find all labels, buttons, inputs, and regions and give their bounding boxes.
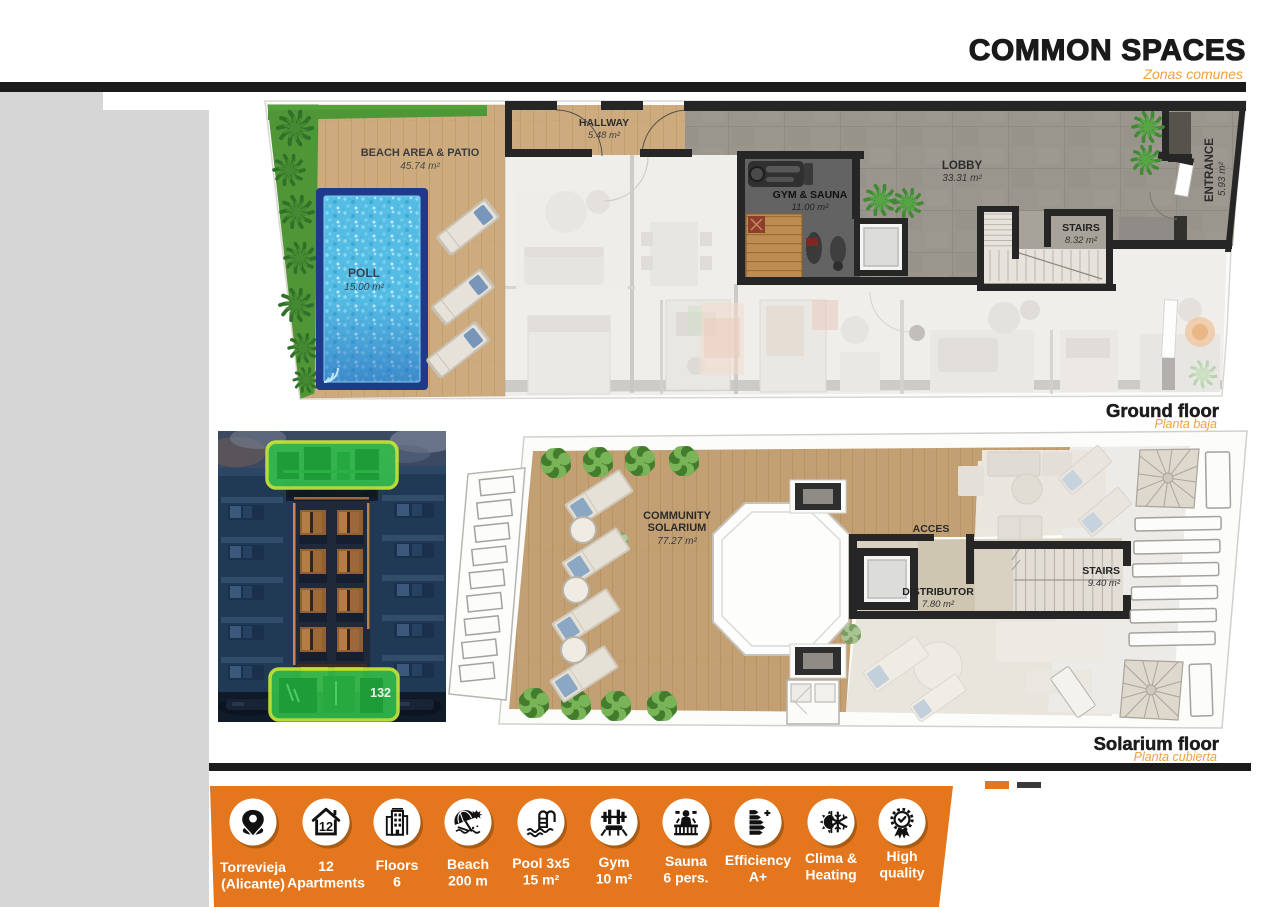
- svg-text:6: 6: [393, 874, 401, 890]
- svg-text:HALLWAY: HALLWAY: [579, 117, 629, 129]
- svg-text:200 m: 200 m: [448, 873, 488, 889]
- svg-text:LOBBY: LOBBY: [942, 160, 983, 172]
- svg-text:Gym: Gym: [598, 854, 629, 870]
- svg-text:Planta cubierta: Planta cubierta: [1134, 750, 1217, 764]
- svg-text:GYM & SAUNA: GYM & SAUNA: [773, 189, 848, 201]
- svg-text:Zonas comunes: Zonas comunes: [1142, 66, 1243, 82]
- svg-text:11.00 m²: 11.00 m²: [792, 202, 830, 213]
- svg-text:8.32 m²: 8.32 m²: [1065, 235, 1098, 246]
- svg-text:ENTRANCE: ENTRANCE: [1204, 138, 1216, 202]
- svg-text:77.27 m²: 77.27 m²: [657, 536, 697, 547]
- svg-text:10 m²: 10 m²: [596, 871, 633, 887]
- svg-text:ACCES: ACCES: [913, 523, 950, 535]
- svg-text:33.31 m²: 33.31 m²: [942, 173, 982, 184]
- svg-text:Torrevieja: Torrevieja: [220, 859, 286, 875]
- svg-text:POLL: POLL: [348, 266, 380, 280]
- svg-text:132: 132: [370, 686, 391, 700]
- svg-text:Clima &: Clima &: [805, 850, 857, 866]
- svg-text:15 m²: 15 m²: [523, 872, 560, 888]
- svg-text:Beach: Beach: [447, 856, 489, 872]
- svg-text:15.00 m²: 15.00 m²: [344, 282, 384, 293]
- svg-text:5.93 m²: 5.93 m²: [1217, 161, 1228, 196]
- svg-text:A+: A+: [749, 869, 767, 885]
- svg-text:SOLARIUM: SOLARIUM: [648, 522, 707, 534]
- svg-text:9.40 m²: 9.40 m²: [1088, 578, 1121, 589]
- svg-text:12: 12: [318, 858, 334, 874]
- svg-text:12: 12: [319, 819, 333, 834]
- svg-text:Apartments: Apartments: [287, 875, 365, 891]
- svg-text:7.80 m²: 7.80 m²: [922, 599, 955, 610]
- svg-text:quality: quality: [879, 865, 924, 881]
- svg-text:COMMUNITY: COMMUNITY: [643, 510, 711, 522]
- svg-text:6 pers.: 6 pers.: [663, 870, 708, 886]
- svg-text:High: High: [886, 848, 917, 864]
- svg-text:45.74 m²: 45.74 m²: [400, 161, 440, 172]
- svg-text:Sauna: Sauna: [665, 853, 707, 869]
- svg-text:STAIRS: STAIRS: [1082, 565, 1120, 577]
- svg-text:Pool 3x5: Pool 3x5: [512, 855, 570, 871]
- svg-text:DISTRIBUTOR: DISTRIBUTOR: [902, 586, 974, 598]
- svg-text:Floors: Floors: [376, 857, 419, 873]
- svg-text:Heating: Heating: [805, 867, 856, 883]
- svg-text:(Alicante): (Alicante): [221, 876, 285, 892]
- svg-text:Planta baja: Planta baja: [1154, 417, 1217, 431]
- svg-text:5.48 m²: 5.48 m²: [588, 130, 621, 141]
- svg-text:Efficiency: Efficiency: [725, 852, 791, 868]
- svg-text:BEACH AREA & PATIO: BEACH AREA & PATIO: [361, 147, 480, 159]
- svg-text:COMMON SPACES: COMMON SPACES: [969, 34, 1246, 67]
- svg-text:STAIRS: STAIRS: [1062, 222, 1100, 234]
